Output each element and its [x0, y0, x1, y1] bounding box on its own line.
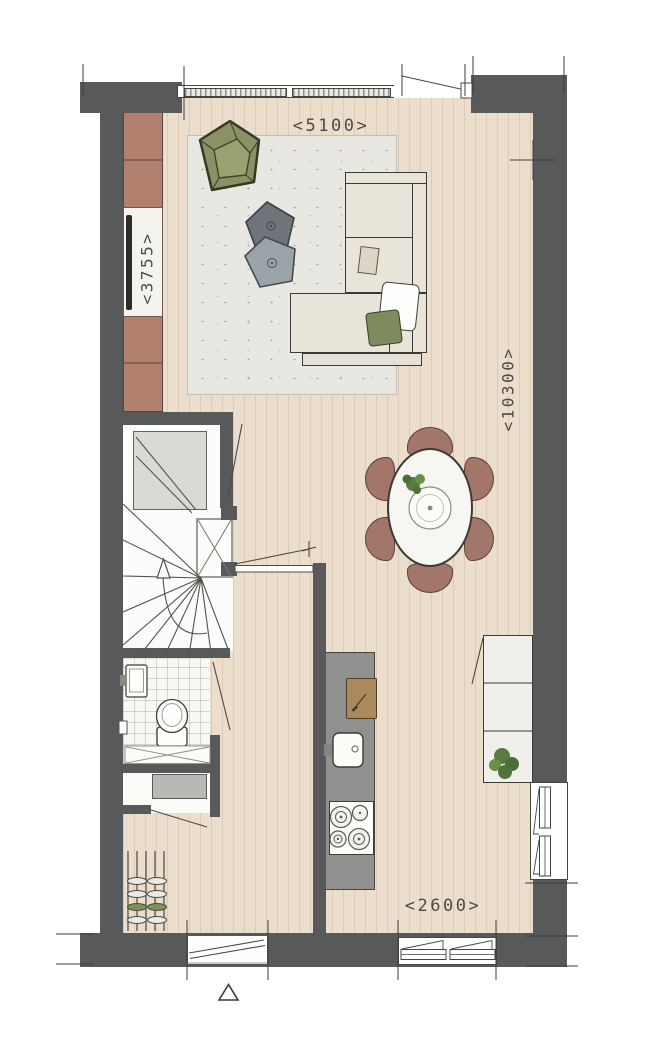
- wall-wc-top: [123, 648, 230, 658]
- dimension-label-left: <3755>: [138, 232, 157, 305]
- right-window: [530, 782, 568, 880]
- sofa-base: [302, 353, 422, 366]
- garden-door-opening: [394, 78, 470, 98]
- wall-stair-side: [220, 412, 233, 508]
- bottom-window: [398, 937, 497, 965]
- wall-wc-side: [210, 735, 220, 817]
- cutting-board: [346, 678, 377, 719]
- pillow-green: [365, 309, 403, 347]
- top-window-frame: [177, 85, 395, 98]
- wall-wc-closet-divider: [123, 764, 215, 773]
- toilet-room: [123, 659, 210, 745]
- entrance-triangle-marker: [219, 985, 238, 1001]
- entrance-door-opening: [187, 935, 268, 965]
- duct-cap-bottom: [221, 562, 237, 576]
- dimension-label-right: <10300>: [499, 347, 518, 432]
- stair-void-panel: [133, 431, 207, 510]
- top-window-pane-left: [184, 88, 287, 97]
- sofa-armrest-line: [346, 183, 426, 184]
- tv-screen: [126, 215, 132, 310]
- sofa-tray: [357, 246, 379, 275]
- dimension-label-top: <5100>: [293, 116, 369, 136]
- dimension-label-bottom: <2600>: [405, 896, 481, 916]
- dining-table: [387, 448, 473, 567]
- washer-appliance: [152, 774, 207, 799]
- wall-closet-bottom-stub: [123, 805, 151, 814]
- wall-stair-top: [123, 412, 233, 425]
- wall-top-left-block: [80, 82, 182, 113]
- wall-top-right-block: [471, 75, 567, 113]
- sofa-body: [345, 172, 427, 293]
- sideboard: [483, 635, 533, 783]
- floorplan-canvas: <5100> <3755> <10300> <2600>: [0, 0, 646, 1050]
- wall-kitchen: [313, 563, 326, 933]
- top-window-pane-right: [292, 88, 391, 97]
- sofa-cushion-line: [346, 237, 412, 238]
- wall-left: [100, 112, 123, 933]
- cooktop: [329, 801, 374, 855]
- duct-cap-top: [221, 506, 237, 520]
